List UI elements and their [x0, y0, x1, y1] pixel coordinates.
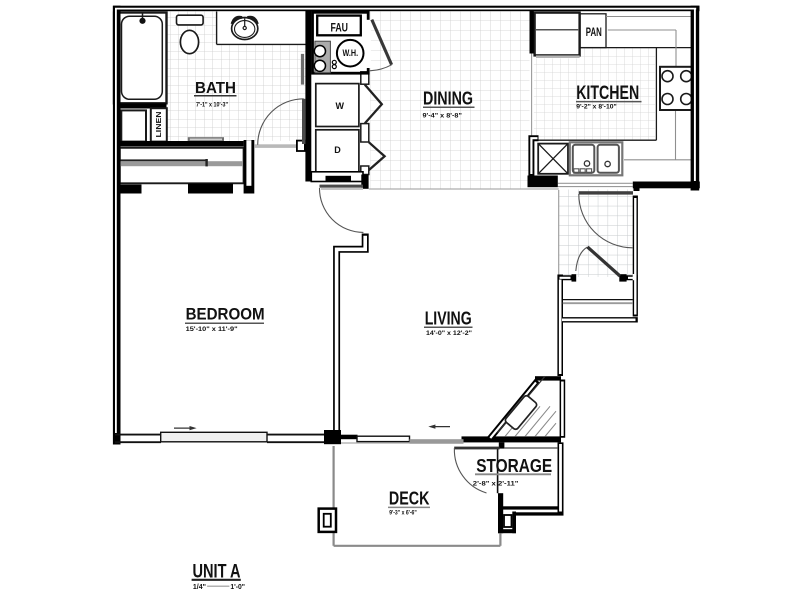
svg-text:1/4": 1/4" — [193, 584, 206, 591]
svg-text:9'-3" x 6'-6": 9'-3" x 6'-6" — [389, 510, 417, 517]
svg-text:15'-10" x 11'-9": 15'-10" x 11'-9" — [186, 326, 238, 333]
svg-text:14'-0" x 12'-2": 14'-0" x 12'-2" — [426, 330, 472, 337]
svg-text:DECK: DECK — [389, 488, 430, 509]
svg-text:D: D — [334, 145, 341, 155]
svg-text:1'-0": 1'-0" — [230, 584, 245, 591]
svg-text:9'-2" x 8'-10": 9'-2" x 8'-10" — [576, 103, 617, 110]
svg-text:7'-1" x 10'-3": 7'-1" x 10'-3" — [196, 102, 228, 109]
svg-text:W: W — [336, 101, 345, 111]
svg-text:PAN: PAN — [586, 27, 602, 39]
svg-text:LINEN: LINEN — [154, 112, 163, 138]
svg-text:BEDROOM: BEDROOM — [186, 305, 265, 323]
svg-text:2'-8" x 2'-11": 2'-8" x 2'-11" — [473, 481, 519, 488]
svg-text:9'-4" x 8'-8": 9'-4" x 8'-8" — [423, 112, 462, 119]
svg-text:DINING: DINING — [423, 89, 473, 109]
svg-text:KITCHEN: KITCHEN — [576, 82, 639, 104]
svg-text:W.H.: W.H. — [343, 48, 359, 59]
svg-text:LIVING: LIVING — [425, 308, 472, 329]
svg-text:BATH: BATH — [195, 80, 236, 97]
svg-text:FAU: FAU — [331, 21, 349, 35]
svg-text:STORAGE: STORAGE — [476, 455, 552, 476]
